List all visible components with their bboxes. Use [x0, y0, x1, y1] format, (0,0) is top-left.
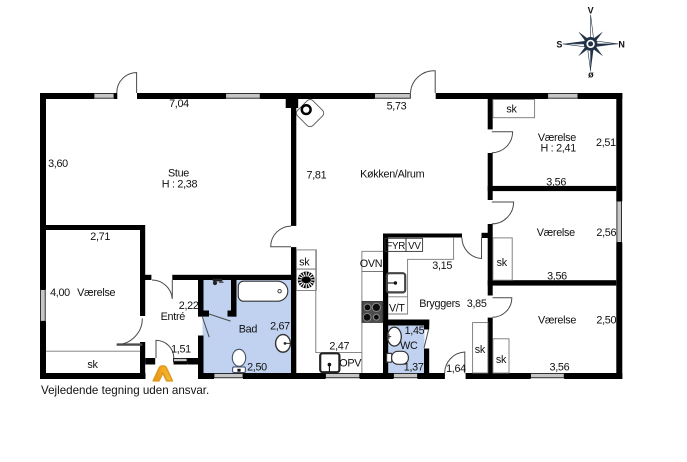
svg-text:S: S [556, 39, 562, 49]
svg-text:Vejledende tegning uden ansvar: Vejledende tegning uden ansvar. [41, 384, 209, 397]
svg-text:2,71: 2,71 [90, 231, 110, 243]
svg-text:OPV: OPV [339, 358, 362, 370]
svg-text:Værelse: Værelse [77, 287, 115, 299]
svg-text:Bryggers: Bryggers [419, 298, 461, 310]
svg-text:Entré: Entré [161, 311, 186, 323]
svg-text:4,00: 4,00 [50, 287, 70, 299]
svg-text:Værelse: Værelse [538, 315, 576, 327]
svg-text:N: N [618, 39, 625, 49]
svg-text:V/T: V/T [389, 303, 405, 315]
svg-text:sk: sk [299, 256, 310, 268]
svg-text:2,50: 2,50 [596, 315, 616, 327]
svg-text:3,56: 3,56 [549, 361, 569, 373]
svg-text:3,60: 3,60 [48, 158, 68, 170]
svg-text:2,51: 2,51 [596, 137, 616, 149]
svg-text:2,50: 2,50 [247, 362, 267, 374]
svg-text:2,22: 2,22 [179, 300, 199, 312]
svg-text:1,37: 1,37 [404, 361, 424, 373]
svg-text:1,45: 1,45 [405, 325, 425, 337]
svg-text:H : 2,38: H : 2,38 [162, 179, 198, 191]
svg-text:Værelse: Værelse [537, 227, 575, 239]
svg-text:sk: sk [496, 354, 507, 366]
svg-text:FYR: FYR [386, 241, 405, 252]
svg-text:WC: WC [400, 340, 418, 352]
svg-text:sk: sk [497, 257, 508, 269]
svg-text:3,56: 3,56 [547, 271, 567, 283]
svg-text:1,64: 1,64 [446, 363, 466, 375]
svg-text:sk: sk [506, 104, 517, 116]
svg-text:5,73: 5,73 [387, 100, 407, 112]
svg-text:Køkken/Alrum: Køkken/Alrum [360, 168, 425, 180]
svg-text:3,56: 3,56 [546, 176, 566, 188]
svg-text:7,04: 7,04 [169, 98, 189, 110]
svg-text:ø: ø [588, 70, 594, 80]
svg-text:3,15: 3,15 [432, 260, 452, 272]
svg-text:sk: sk [475, 344, 486, 356]
svg-text:1,51: 1,51 [171, 344, 191, 356]
svg-text:OVN: OVN [360, 258, 383, 270]
svg-text:Bad: Bad [239, 324, 258, 336]
svg-text:V: V [588, 5, 594, 15]
svg-text:VV: VV [408, 241, 421, 252]
svg-text:7,81: 7,81 [306, 170, 326, 182]
svg-text:2,47: 2,47 [329, 340, 349, 352]
svg-text:2,67: 2,67 [270, 321, 290, 333]
svg-text:H : 2,41: H : 2,41 [540, 142, 576, 154]
svg-text:3,85: 3,85 [467, 298, 487, 310]
svg-text:sk: sk [87, 359, 98, 371]
svg-text:2,56: 2,56 [596, 227, 616, 239]
